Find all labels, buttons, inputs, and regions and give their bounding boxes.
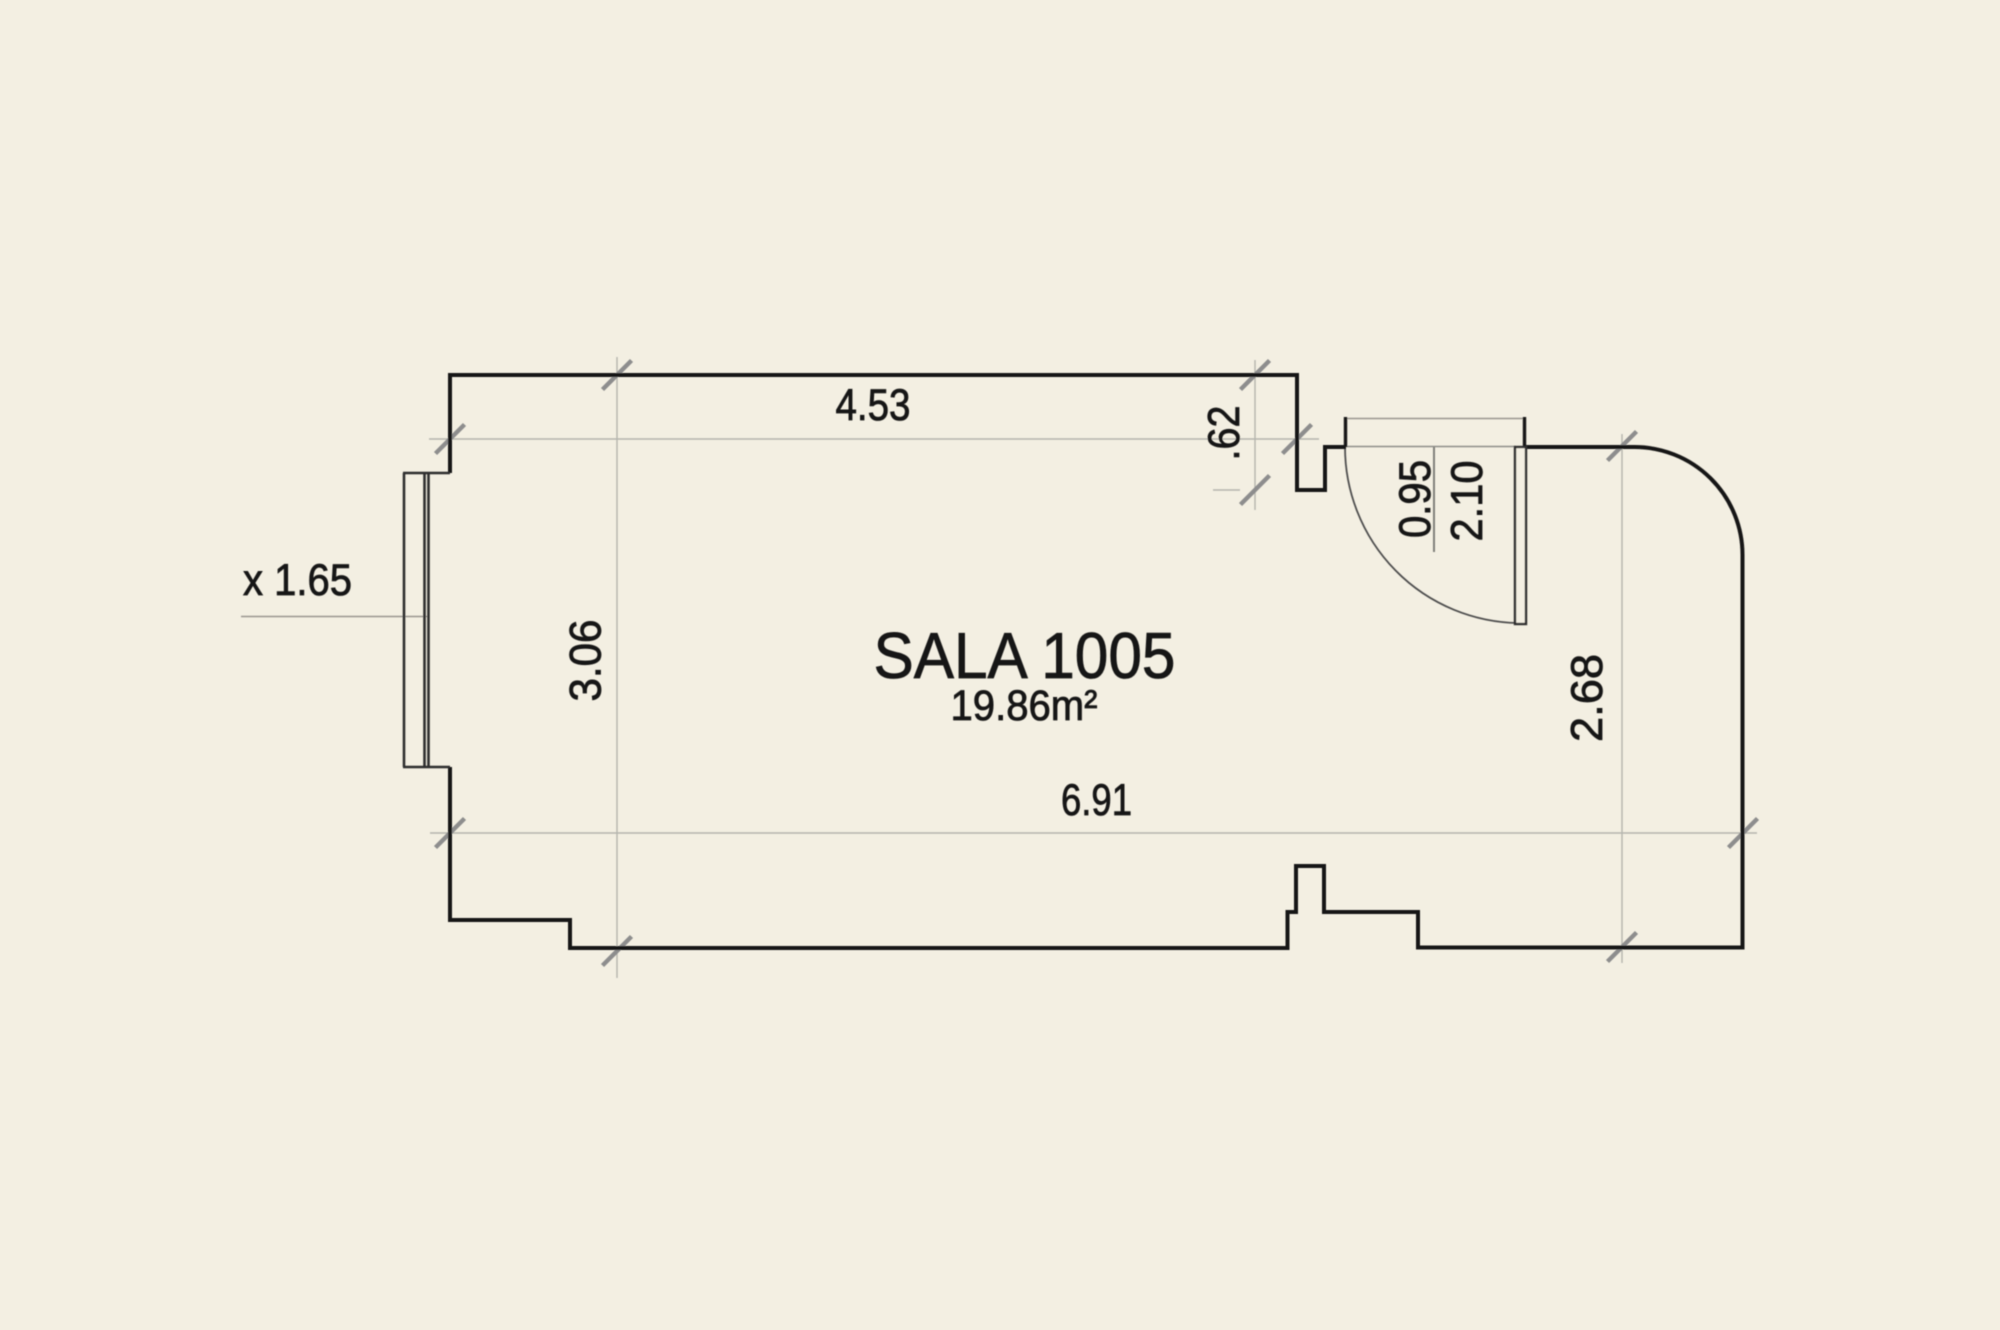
svg-text:0.95: 0.95 xyxy=(1391,460,1440,538)
svg-text:SALA 1005: SALA 1005 xyxy=(874,619,1176,692)
svg-text:x 1.65: x 1.65 xyxy=(243,556,352,605)
svg-text:3.06: 3.06 xyxy=(562,620,611,702)
svg-text:2.68: 2.68 xyxy=(1563,654,1612,742)
svg-text:4.53: 4.53 xyxy=(836,381,911,430)
svg-text:19.86m²: 19.86m² xyxy=(951,683,1098,730)
svg-text:2.10: 2.10 xyxy=(1443,461,1492,542)
svg-text:6.91: 6.91 xyxy=(1061,776,1132,825)
svg-text:.62: .62 xyxy=(1200,406,1249,461)
